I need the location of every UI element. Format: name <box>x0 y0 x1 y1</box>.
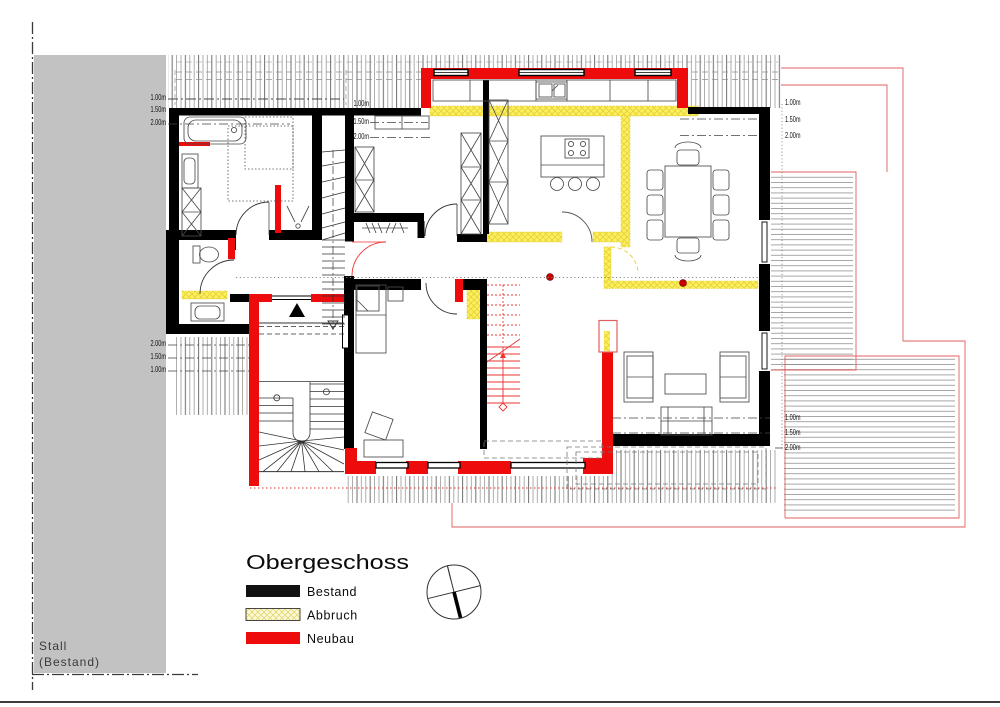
svg-text:2.00m: 2.00m <box>785 443 801 452</box>
svg-text:1.50m: 1.50m <box>785 115 801 124</box>
svg-text:1.00m: 1.00m <box>354 99 370 108</box>
svg-text:Stall: Stall <box>39 639 67 653</box>
svg-text:2.00m: 2.00m <box>785 131 801 140</box>
svg-text:1.00m: 1.00m <box>785 98 801 107</box>
svg-text:Bestand: Bestand <box>307 585 357 599</box>
svg-text:Neubau: Neubau <box>307 632 354 646</box>
svg-text:Abbruch: Abbruch <box>307 609 358 623</box>
svg-text:1.00m: 1.00m <box>151 365 167 374</box>
svg-text:1.50m: 1.50m <box>151 105 167 114</box>
svg-text:1.50m: 1.50m <box>785 428 801 437</box>
svg-text:2.00m: 2.00m <box>151 339 167 348</box>
svg-text:2.00m: 2.00m <box>151 118 167 127</box>
svg-text:1.00m: 1.00m <box>151 93 167 102</box>
svg-text:(Bestand): (Bestand) <box>39 655 100 669</box>
svg-text:1.50m: 1.50m <box>151 352 167 361</box>
svg-text:2.00m: 2.00m <box>354 132 370 141</box>
svg-text:1.50m: 1.50m <box>354 117 370 126</box>
svg-text:Obergeschoss: Obergeschoss <box>246 551 409 574</box>
svg-text:1.00m: 1.00m <box>785 413 801 422</box>
